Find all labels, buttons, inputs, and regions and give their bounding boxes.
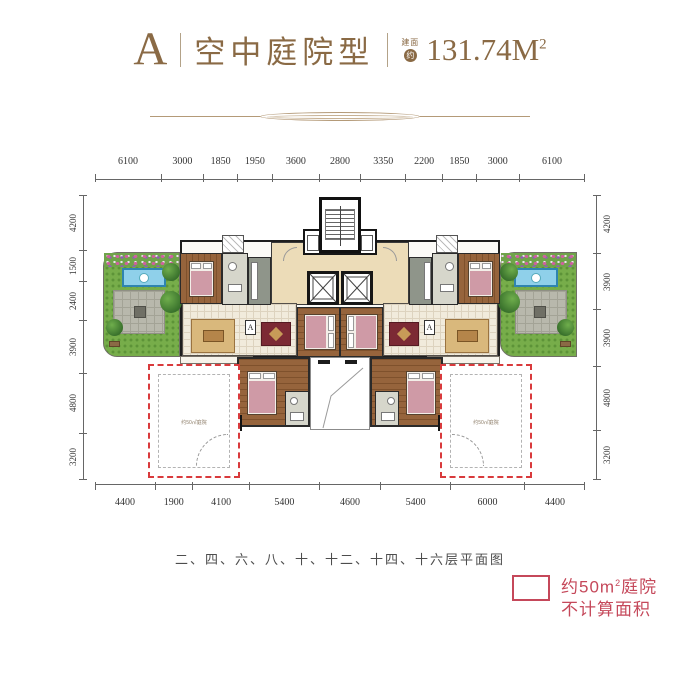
dimension-label: 2800 — [330, 156, 350, 167]
dimension-segment: 3900 — [594, 310, 620, 366]
dimension-label: 4100 — [211, 497, 231, 508]
dimension-label: 4200 — [602, 215, 612, 233]
dimension-segment: 4800 — [60, 373, 86, 433]
dimension-strip-top: 6100 3000 1850 1950 3600 2800 3350 2200 … — [95, 156, 585, 180]
dimension-segment: 6000 — [450, 484, 525, 508]
area-approx-badge: 约 — [404, 49, 417, 62]
legend-line-1: 约50m2庭院 — [561, 572, 657, 599]
legend-line1-pre: 约50m — [561, 578, 615, 597]
step-mark — [345, 360, 357, 364]
elevator — [341, 271, 373, 305]
area-prefix: 建面 约 — [401, 37, 419, 62]
legend-line1-post: 庭院 — [621, 578, 657, 597]
section-marker: A — [424, 320, 435, 335]
header-separator — [387, 33, 388, 67]
bedroom-lower-right — [370, 357, 443, 427]
kitchen-counter — [251, 262, 258, 300]
dimension-label: 4400 — [115, 497, 135, 508]
bed — [189, 261, 214, 297]
dimension-segment: 1500 — [60, 250, 86, 281]
blanket — [470, 271, 491, 295]
legend-line-2: 不计算面积 — [561, 599, 657, 621]
dimension-segment: 3000 — [161, 156, 204, 180]
area-rug-left — [261, 322, 291, 346]
tree — [162, 263, 180, 281]
divider-line — [150, 116, 260, 117]
toilet — [290, 397, 298, 405]
section-marker-letter: A — [248, 323, 254, 332]
dimension-label: 3350 — [373, 156, 393, 167]
dimension-label: 6100 — [118, 156, 138, 167]
area-prefix-label: 建面 — [401, 37, 419, 48]
dimension-label: 1950 — [245, 156, 265, 167]
bedroom-lower-left — [237, 357, 310, 427]
dimension-segment: 2200 — [406, 156, 443, 180]
floor-caption: 二、四、六、八、十、十二、十四、十六层平面图 — [0, 549, 680, 568]
area-number: 131.74M — [426, 32, 539, 67]
dimension-segment: 4100 — [192, 484, 249, 508]
courtyard-left: 约50㎡庭院 — [148, 364, 240, 478]
shaft-box — [307, 235, 319, 251]
dimension-segment: 3600 — [272, 156, 319, 180]
dimension-strip-bottom: 4400 1900 4100 5400 4600 5400 6000 4400 — [95, 484, 585, 508]
unit-type-name: 空中庭院型 — [194, 27, 374, 72]
dimension-segment: 2400 — [60, 281, 86, 320]
dimension-label: 3200 — [68, 448, 78, 466]
dimension-segment: 4200 — [60, 195, 86, 250]
bathroom-lower-left — [285, 391, 309, 426]
dimension-label: 3000 — [172, 156, 192, 167]
dimension-segment: 1900 — [155, 484, 192, 508]
divider-lens — [260, 112, 420, 121]
blanket — [306, 316, 326, 348]
pillow — [203, 263, 213, 269]
dimension-segment: 3200 — [594, 431, 620, 480]
dimension-label: 4200 — [68, 214, 78, 232]
pillow — [249, 373, 261, 379]
elevator — [307, 271, 339, 305]
garden-bench — [560, 341, 571, 347]
pillow — [482, 263, 492, 269]
dimension-label: 6100 — [542, 156, 562, 167]
dimension-label: 1900 — [164, 497, 184, 508]
blanket — [191, 271, 212, 295]
garden-table — [134, 306, 146, 318]
staircase — [319, 197, 361, 253]
dimension-label: 6000 — [478, 497, 498, 508]
pillow — [422, 373, 434, 379]
service-balcony-right — [436, 235, 458, 253]
blanket — [356, 316, 376, 348]
section-marker-letter: A — [427, 323, 433, 332]
bedroom-upper-left — [180, 253, 222, 304]
tree — [557, 319, 574, 336]
central-void — [310, 357, 370, 430]
dimension-label: 3600 — [286, 156, 306, 167]
pillow — [328, 316, 334, 331]
toilet — [228, 262, 237, 271]
dimension-label: 4800 — [68, 394, 78, 412]
dimension-strip-right: 4200 3900 3900 4800 3200 — [594, 195, 620, 480]
dimension-segment: 4200 — [594, 195, 620, 254]
dining-set-right — [445, 319, 489, 353]
courtyard-label: 约50㎡庭院 — [442, 419, 530, 426]
dimension-segment: 3900 — [594, 254, 620, 310]
divider-line — [420, 116, 530, 117]
tree — [106, 319, 123, 336]
tree — [498, 291, 520, 313]
dimension-segment: 4800 — [594, 366, 620, 431]
legend-text: 约50m2庭院 不计算面积 — [561, 572, 657, 621]
toilet — [387, 397, 395, 405]
kitchen-left — [248, 257, 271, 305]
bed — [346, 314, 378, 350]
dimension-label: 3900 — [602, 329, 612, 347]
dimension-segment: 1950 — [238, 156, 273, 180]
area-rug-right — [389, 322, 419, 346]
floorplan-page: A 空中庭院型 建面 约 131.74M2 6100 3000 1850 195… — [0, 0, 680, 688]
divider-lens-inner — [267, 115, 413, 119]
dimension-label: 5400 — [406, 497, 426, 508]
sink — [228, 284, 242, 292]
header-separator — [180, 33, 181, 67]
dimension-label: 1500 — [68, 257, 78, 275]
dimension-label: 3900 — [68, 338, 78, 356]
floorplan-drawing: A A — [95, 195, 585, 480]
bed — [468, 261, 493, 297]
kitchen-counter — [424, 262, 431, 300]
dimension-segment: 5400 — [381, 484, 450, 508]
divider-ornament — [150, 112, 530, 121]
bedroom-center-left — [297, 307, 340, 357]
bed — [406, 371, 436, 415]
sink — [440, 284, 454, 292]
dimension-label: 4400 — [545, 497, 565, 508]
dimension-segment: 3350 — [361, 156, 406, 180]
pillow — [191, 263, 201, 269]
toilet — [445, 262, 454, 271]
bed — [247, 371, 277, 415]
pillow — [348, 316, 354, 331]
dimension-label: 3200 — [602, 446, 612, 464]
bathroom-upper-right — [432, 253, 458, 305]
dimension-label: 3900 — [602, 273, 612, 291]
dimension-label: 1850 — [449, 156, 469, 167]
dimension-segment: 3000 — [476, 156, 519, 180]
bathtub — [381, 412, 395, 421]
stair-divider — [340, 206, 341, 246]
pillow — [408, 373, 420, 379]
plan-header: A 空中庭院型 建面 约 131.74M2 — [0, 26, 680, 73]
dimension-label: 2400 — [68, 292, 78, 310]
dimension-segment: 4400 — [525, 484, 585, 508]
tree — [500, 263, 518, 281]
dimension-segment: 6100 — [519, 156, 585, 180]
shaft-box — [361, 235, 373, 251]
blanket — [249, 381, 275, 413]
dimension-segment: 6100 — [95, 156, 161, 180]
dimension-strip-left: 4200 1500 2400 3900 4800 3200 — [60, 195, 86, 480]
dining-set-left — [191, 319, 235, 353]
garden-terrace-left — [103, 252, 180, 357]
bathroom-upper-left — [222, 253, 248, 305]
blanket — [408, 381, 434, 413]
dimension-label: 4800 — [602, 389, 612, 407]
tree — [160, 291, 182, 313]
bed — [304, 314, 336, 350]
bathroom-lower-right — [375, 391, 399, 426]
pool — [122, 268, 166, 287]
dimension-segment: 3900 — [60, 321, 86, 374]
bedroom-upper-right — [458, 253, 500, 304]
courtyard-right: 约50㎡庭院 — [440, 364, 532, 478]
dimension-label: 2200 — [414, 156, 434, 167]
bathtub — [290, 412, 304, 421]
garden-table — [534, 306, 546, 318]
dimension-segment: 4600 — [319, 484, 381, 508]
legend-swatch — [512, 575, 550, 601]
dimension-segment: 1850 — [442, 156, 476, 180]
bedroom-center-right — [340, 307, 383, 357]
garden-bench — [109, 341, 120, 347]
service-balcony-left — [222, 235, 244, 253]
dimension-segment: 1850 — [204, 156, 238, 180]
dimension-label: 4600 — [340, 497, 360, 508]
pillow — [328, 333, 334, 348]
dimension-segment: 2800 — [319, 156, 360, 180]
unit-type-letter: A — [133, 26, 167, 73]
dimension-segment: 5400 — [250, 484, 319, 508]
pillow — [263, 373, 275, 379]
pillow — [470, 263, 480, 269]
courtyard-legend: 约50m2庭院 不计算面积 — [512, 572, 657, 621]
dimension-label: 5400 — [274, 497, 294, 508]
step-mark — [318, 360, 330, 364]
pillow — [348, 333, 354, 348]
area-value: 131.74M2 — [426, 32, 546, 68]
section-marker: A — [245, 320, 256, 335]
dimension-label: 3000 — [488, 156, 508, 167]
dimension-label: 1850 — [211, 156, 231, 167]
dimension-segment: 4400 — [95, 484, 155, 508]
courtyard-label: 约50㎡庭院 — [150, 419, 238, 426]
area-superscript: 2 — [539, 36, 547, 52]
garden-terrace-right — [500, 252, 577, 357]
kitchen-right — [409, 257, 432, 305]
void-guide-line — [311, 358, 371, 431]
dimension-segment: 3200 — [60, 434, 86, 480]
pool — [514, 268, 558, 287]
